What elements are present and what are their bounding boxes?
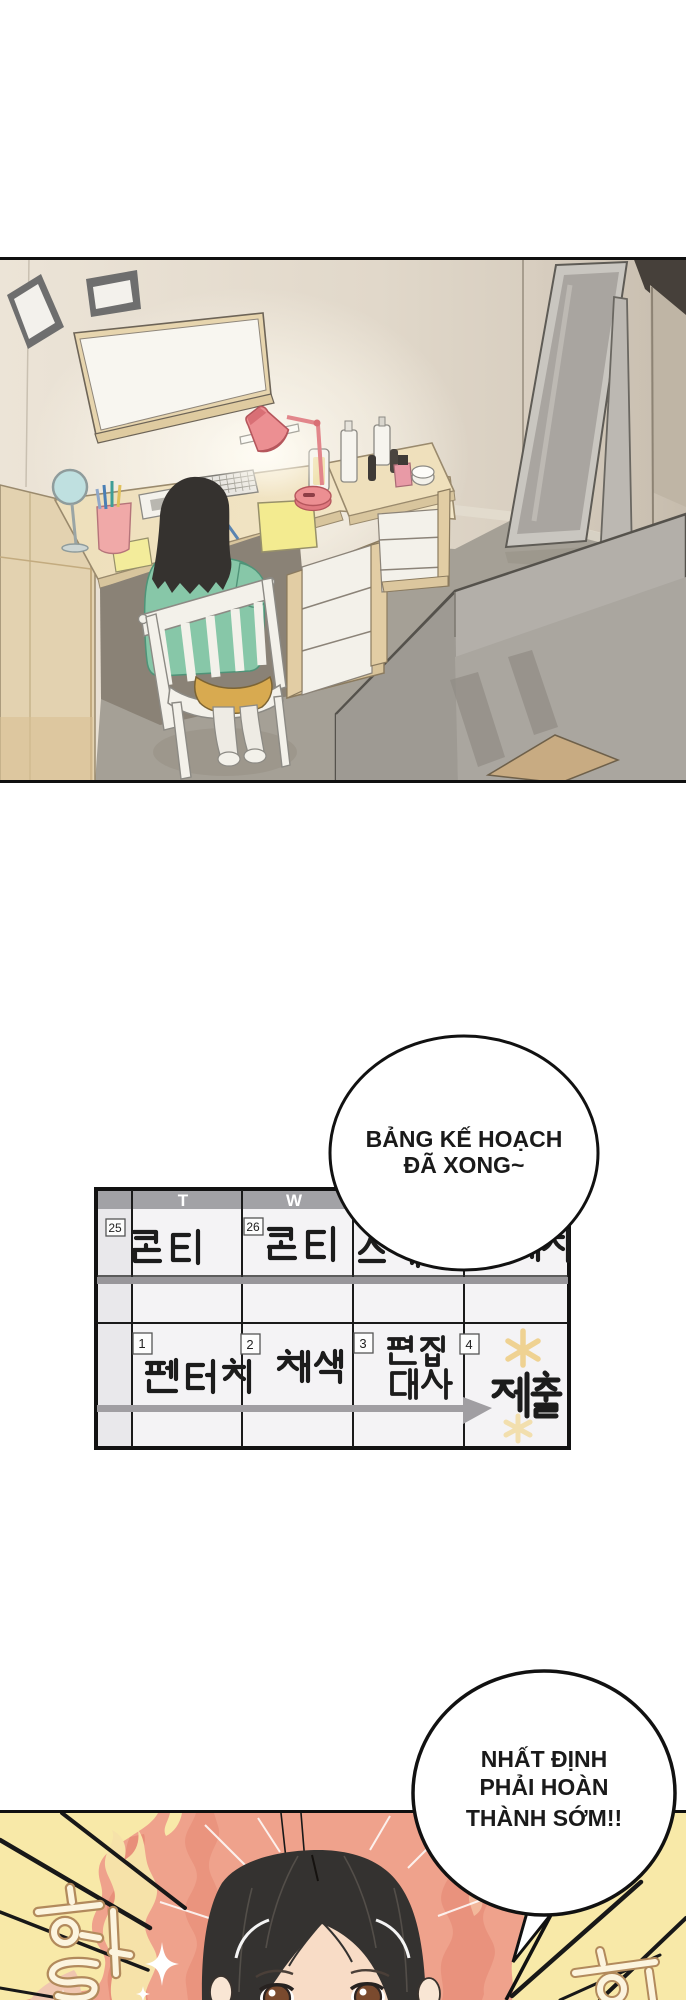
svg-text:BẢNG KẾ HOẠCH: BẢNG KẾ HOẠCH — [366, 1124, 563, 1152]
svg-text:T: T — [178, 1191, 189, 1210]
svg-text:1: 1 — [138, 1336, 145, 1351]
svg-text:4: 4 — [465, 1337, 472, 1352]
svg-text:3: 3 — [359, 1336, 366, 1351]
svg-text:2: 2 — [246, 1337, 253, 1352]
svg-text:26: 26 — [246, 1220, 260, 1234]
svg-text:THÀNH SỚM!!: THÀNH SỚM!! — [466, 1804, 622, 1831]
svg-text:ĐÃ XONG~: ĐÃ XONG~ — [404, 1151, 525, 1178]
svg-text:W: W — [286, 1191, 303, 1210]
svg-text:25: 25 — [108, 1221, 122, 1235]
svg-text:PHẢI HOÀN: PHẢI HOÀN — [479, 1772, 608, 1800]
svg-text:NHẤT ĐỊNH: NHẤT ĐỊNH — [481, 1745, 608, 1772]
